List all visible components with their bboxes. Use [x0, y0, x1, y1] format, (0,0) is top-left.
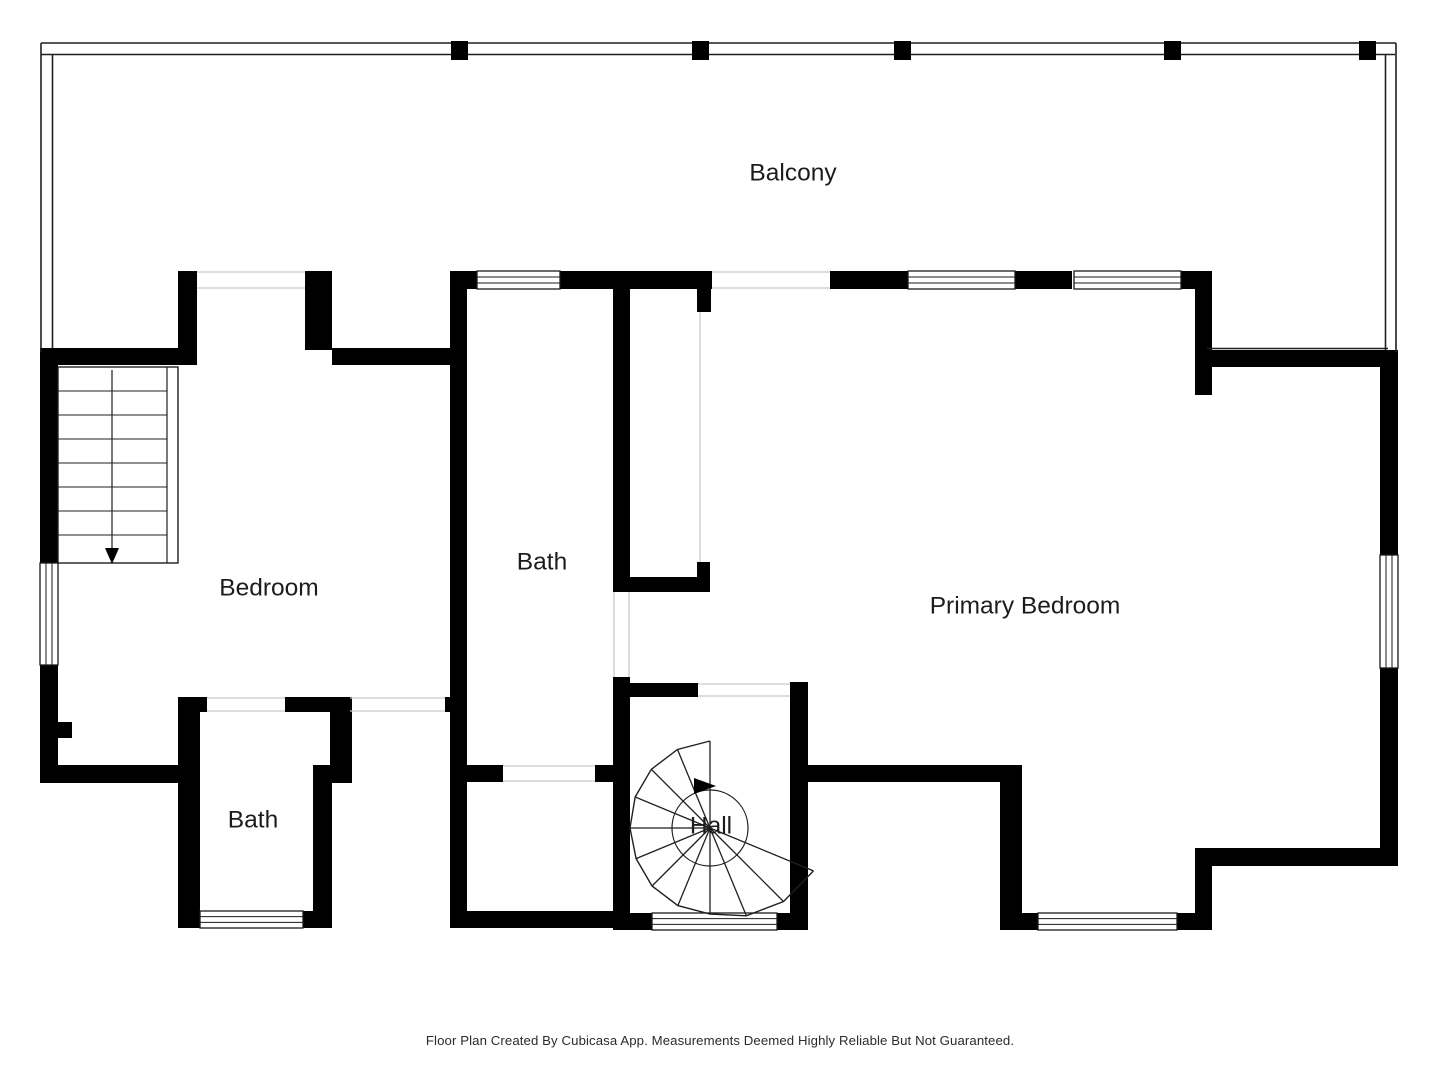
- room-label-bath-middle: Bath: [517, 548, 567, 575]
- wall-segment: [450, 271, 467, 928]
- wall-segment: [330, 697, 352, 767]
- wall-segment: [613, 677, 630, 930]
- wall-segment: [305, 271, 332, 350]
- window: [1074, 271, 1181, 289]
- footer-disclaimer: Floor Plan Created By Cubicasa App. Meas…: [0, 1033, 1440, 1048]
- balcony-post: [1359, 41, 1376, 60]
- floor-plan-canvas: BalconyBedroomBathPrimary BedroomBathHal…: [0, 0, 1440, 1080]
- wall-segment: [777, 913, 808, 930]
- wall-segment: [1015, 271, 1072, 289]
- balcony-post: [451, 41, 468, 60]
- wall-segment: [697, 289, 711, 312]
- floorplan-page: BalconyBedroomBathPrimary BedroomBathHal…: [0, 0, 1440, 1080]
- wall-segment: [808, 765, 1022, 782]
- room-label-hall: Hall: [690, 812, 732, 839]
- wall-segment: [58, 722, 72, 738]
- wall-segment: [1380, 350, 1398, 555]
- window: [1038, 913, 1177, 930]
- wall-segment: [613, 577, 710, 592]
- wall-segment: [830, 271, 908, 289]
- wall-segment: [1380, 668, 1398, 850]
- wall-segment: [40, 348, 178, 365]
- wall-segment: [178, 271, 197, 365]
- staircase-outline: [58, 367, 178, 563]
- balcony-post: [692, 41, 709, 60]
- wall-segment: [1195, 289, 1212, 395]
- wall-segment: [450, 911, 630, 928]
- wall-segment: [560, 271, 712, 289]
- balcony-post: [894, 41, 911, 60]
- wall-segment: [313, 783, 332, 928]
- wall-segment: [595, 765, 630, 782]
- wall-segment: [1000, 765, 1022, 930]
- room-label-bath-lower: Bath: [228, 806, 278, 833]
- room-label-bedroom: Bedroom: [219, 574, 318, 601]
- wall-segment: [697, 562, 710, 577]
- window: [652, 913, 777, 930]
- wall-segment: [332, 348, 467, 365]
- wall-segment: [1207, 350, 1398, 367]
- wall-segment: [178, 697, 207, 712]
- wall-segment: [1180, 271, 1212, 289]
- window: [477, 271, 560, 289]
- window: [200, 911, 303, 928]
- wall-segment: [40, 765, 200, 783]
- wall-segment: [178, 698, 200, 928]
- wall-segment: [450, 765, 503, 782]
- window: [908, 271, 1015, 289]
- wall-segment: [1207, 848, 1398, 866]
- balcony-post: [1164, 41, 1181, 60]
- room-label-primary-bedroom: Primary Bedroom: [930, 592, 1121, 619]
- wall-segment: [613, 289, 630, 592]
- window: [1380, 555, 1398, 668]
- wall-segment: [630, 913, 652, 930]
- window: [40, 563, 58, 665]
- room-label-balcony: Balcony: [749, 159, 837, 186]
- wall-segment: [313, 765, 352, 783]
- spiral-stair-direction-arrow: [694, 778, 716, 794]
- wall-segment: [40, 348, 58, 563]
